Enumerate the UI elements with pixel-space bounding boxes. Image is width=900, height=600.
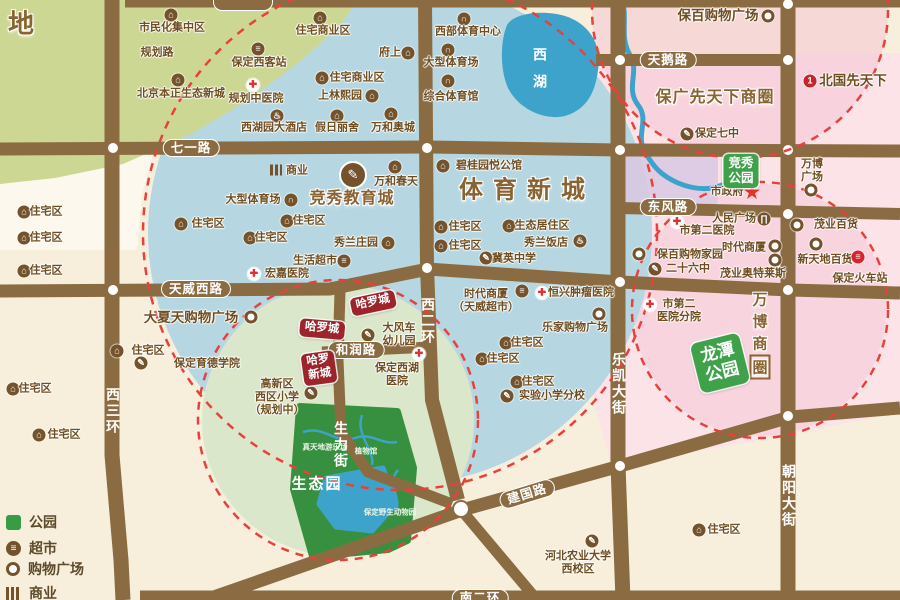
poi-label: 住宅区 [48, 428, 81, 441]
district-label: 地 [8, 4, 36, 41]
poi-label: 住宅区 [708, 523, 741, 536]
poi-label: 大风车幼儿园 [383, 322, 416, 348]
home-icon: ⌂ [314, 12, 327, 25]
poi-label: 住宅区 [19, 382, 52, 395]
label-text: 住宅区 [293, 214, 326, 227]
poi-label: 规划中医院 [229, 92, 284, 105]
label-text: 万和奥城 [371, 121, 415, 134]
road-label: 西二环 [418, 297, 438, 345]
poi-label: 二十六中 [666, 262, 710, 275]
poi-label: 生态居住区 [515, 219, 570, 232]
poi-label: 时代商厦（天威超市） [453, 288, 519, 314]
poi-label: 住宅区 [192, 217, 225, 230]
home-icon: ⌂ [693, 524, 706, 537]
label-text: 大型体育场 [424, 56, 479, 69]
poi-label: 秀兰庄园 [334, 236, 378, 249]
label-text: 住宅区 [255, 231, 288, 244]
home-icon: ⌂ [165, 9, 178, 22]
poi-label: 府上 [379, 46, 401, 59]
label-text: 实验小学分校 [519, 389, 585, 402]
label-text: 广场 [801, 171, 823, 184]
hosp-icon: ✚ [536, 287, 549, 300]
district-label: 生态园 [291, 473, 342, 494]
district-label: 西湖 [533, 38, 547, 99]
home-icon: ⌂ [316, 72, 329, 85]
poi-label: 北国先天下 [819, 73, 887, 89]
poi-label: 保百购物广场 [678, 8, 759, 24]
poi-label: 茂业百货 [814, 218, 858, 231]
road-label-cut [213, 0, 273, 11]
poi-label: 住宅区 [30, 231, 63, 244]
label-text: 西湖园大酒店 [241, 121, 307, 134]
legend-item: 公园 [6, 512, 57, 532]
poi-label: 假日丽舍 [315, 121, 359, 134]
label-text: 商 [749, 333, 770, 354]
label-text: 乐家购物广场 [542, 321, 608, 334]
label-text: 住宅区 [522, 375, 555, 388]
label-text: 竞秀 [728, 156, 753, 171]
label-text: 北国先天下 [819, 73, 887, 89]
home-icon: ⌂ [437, 160, 450, 173]
home-icon: ⌂ [435, 221, 448, 234]
map-labels-layer: ✎ ⌂住宅区⌂住宅区⌂住宅区⌂住宅区⌂住宅区⌂住宅区⌂市民化集中区规划路⌂北京本… [0, 0, 900, 600]
legend-item: 购物广场 [6, 559, 84, 579]
stadium-icon: ∩ [442, 44, 455, 57]
road-label: 西三环 [103, 387, 123, 435]
poi-label: 住宅区 [449, 239, 482, 252]
shop-icon [805, 184, 818, 197]
poi-label: 实验小学分校 [519, 389, 585, 402]
district-label: 竞秀教育城 [309, 184, 394, 208]
label-text: 新天地百货 [798, 253, 853, 266]
label-text: 保定育德学院 [174, 357, 240, 370]
label-text: 西区小学 [250, 391, 305, 404]
poi-label: 大型体育场 [226, 193, 281, 206]
gov-icon: ∏ [758, 213, 771, 226]
poi-label: 恒兴肿瘤医院 [548, 286, 614, 299]
label-text: 生态居住区 [515, 219, 570, 232]
poi-label: 住宅商业区 [330, 71, 385, 84]
poi-label: 北京本正生态新城 [137, 87, 225, 100]
poi-label: 规划路 [141, 46, 174, 59]
home-icon: ⌂ [402, 47, 415, 60]
school-icon: ✎ [681, 128, 694, 141]
label-text: 规划路 [141, 46, 174, 59]
poi-label: 上林熙园 [318, 89, 362, 102]
label-text: 保定火车站 [833, 272, 888, 285]
shop-icon [633, 248, 646, 261]
label-text: 大风车 [383, 322, 416, 335]
legend-shop-icon [6, 562, 20, 576]
poi-label: 住宅区 [487, 352, 520, 365]
label-text: 北京本正生态新城 [137, 87, 225, 100]
poi-label: 宏嘉医院 [265, 267, 309, 280]
home-icon: ⌂ [366, 90, 379, 103]
label-text: 幼儿园 [383, 335, 416, 348]
poi-label: 保定七中 [695, 127, 739, 140]
stadium-icon: ∩ [458, 13, 471, 26]
road-label: 建国路 [497, 477, 556, 511]
poi-label: 乐家购物广场 [542, 321, 608, 334]
school-icon: ✎ [135, 357, 148, 370]
label-text: 住宅区 [30, 264, 63, 277]
label-text: 规划中医院 [229, 92, 284, 105]
district-label: 保广先天下商圈 [655, 83, 774, 107]
poi-label: 商业 [286, 164, 308, 177]
park-label: 植物馆 [355, 446, 378, 457]
label-text: 住宅商业区 [330, 71, 385, 84]
poi-label: 新天地百货 [798, 253, 853, 266]
label-text: 市第二医院 [680, 224, 735, 237]
label-text: 保定七中 [695, 127, 739, 140]
label-text: 万 [749, 289, 770, 310]
train-icon: ≡ [852, 251, 865, 264]
poi-label: 生活超市 [293, 254, 337, 267]
label-text: 上林熙园 [318, 89, 362, 102]
school-icon: ✎ [649, 263, 662, 276]
poi-label: 万和奥城 [371, 121, 415, 134]
shop-icon [769, 254, 782, 267]
label-text: 湖 [533, 72, 547, 92]
district-badge: 哈罗新城 [300, 350, 337, 386]
poi-label: 市第二医院 [680, 224, 735, 237]
label-text: 西 [533, 45, 547, 65]
poi-label: 大夏天购物广场 [144, 310, 239, 326]
poi-label: 住宅区 [30, 264, 63, 277]
poi-label: 保定火车站 [833, 272, 888, 285]
poi-label: 住宅区 [255, 231, 288, 244]
label-text: 万博 [801, 158, 823, 171]
shop-icon [791, 219, 804, 232]
poi-label: 保定育德学院 [174, 357, 240, 370]
shop-icon [810, 238, 823, 251]
one-icon: 1 [804, 75, 817, 88]
legend-item: ≡超市 [6, 538, 57, 558]
biz-icon [270, 165, 282, 176]
label-text: 时代商厦 [453, 288, 519, 301]
label-text: 住宅区 [449, 239, 482, 252]
legend-park-icon [6, 515, 21, 530]
shop-icon [769, 240, 782, 253]
home-icon: ⌂ [111, 345, 124, 358]
road-label: 南二环 [452, 589, 509, 600]
label-text: 住宅区 [708, 523, 741, 536]
label-text: 市第二 [657, 298, 701, 311]
school-icon: ✎ [586, 535, 599, 548]
label-text: 市民化集中区 [139, 21, 205, 34]
district-badge: 龙潭公园 [690, 332, 751, 393]
home-icon: ⌂ [172, 74, 185, 87]
poi-label: 住宅区 [293, 214, 326, 227]
poi-label: 保定西客站 [232, 56, 287, 69]
home-icon: ⌂ [33, 429, 46, 442]
road-label: 天鹅路 [640, 51, 697, 69]
shop-icon [762, 10, 775, 23]
legend-label: 超市 [29, 538, 57, 558]
district-badge: 哈罗城 [349, 290, 396, 317]
label-text: 恒兴肿瘤医院 [548, 286, 614, 299]
poi-label: 保百购物家园 [657, 248, 723, 261]
label-text: 哈罗城 [355, 293, 392, 314]
district-badge: 哈罗城 [299, 318, 345, 340]
road-label: 和润路 [328, 341, 385, 359]
label-text: （天威超市） [453, 301, 519, 314]
district-badge: 竞秀公园 [723, 154, 758, 188]
label-text: 住宅商业区 [296, 24, 351, 37]
poi-label: 西部体育中心 [435, 25, 501, 38]
label-text: 住宅区 [449, 220, 482, 233]
poi-label: 住宅区 [522, 375, 555, 388]
label-text: 西部体育中心 [435, 25, 501, 38]
poi-label: 住宅区 [132, 344, 165, 357]
label-text: 生活超市 [293, 254, 337, 267]
school-icon: ✎ [305, 387, 318, 400]
label-text: 茂业百货 [814, 218, 858, 231]
label-text: 保百购物广场 [678, 8, 759, 24]
label-text: 大型体育场 [226, 193, 281, 206]
school-icon: ✎ [480, 252, 493, 265]
home-icon: ⌂ [389, 161, 402, 174]
label-text: 圈 [749, 355, 770, 380]
label-text: 住宅区 [19, 382, 52, 395]
label-text: 秀兰庄园 [334, 236, 378, 249]
station-icon: ≡ [252, 43, 265, 56]
poi-label: 市第二医院分院 [657, 298, 701, 324]
label-text: 保定西湖 [375, 362, 419, 375]
home-icon: ⌂ [435, 240, 448, 253]
poi-label: 河北农业大学西校区 [545, 550, 611, 576]
label-text: 住宅区 [30, 205, 63, 218]
label-text: 保定西客站 [232, 56, 287, 69]
poi-label: 冀英中学 [492, 252, 536, 265]
poi-label: 住宅商业区 [296, 24, 351, 37]
poi-label: 住宅区 [449, 220, 482, 233]
park-label: 真天地游乐场 [303, 442, 348, 453]
poi-label: 时代商厦 [722, 241, 766, 254]
road-label: 乐凯大街 [609, 352, 629, 416]
legend-super-icon: ≡ [6, 541, 21, 556]
school-icon: ✎ [501, 390, 514, 403]
label-text: 府上 [379, 46, 401, 59]
hotel-icon: ♨ [574, 235, 587, 248]
legend-label: 公园 [29, 512, 57, 532]
label-text: 医院分院 [657, 311, 701, 324]
label-text: 住宅区 [487, 352, 520, 365]
label-text: （规划中） [250, 405, 305, 418]
stadium-icon: ∩ [285, 194, 298, 207]
label-text: 住宅区 [192, 217, 225, 230]
school-icon: ✎ [362, 329, 375, 342]
poi-label: 高新区西区小学（规划中） [250, 378, 305, 418]
poi-label: 市民化集中区 [139, 21, 205, 34]
stadium-icon: ∩ [442, 75, 455, 88]
hosp-icon: ✚ [644, 299, 657, 312]
poi-label: 综合体育馆 [424, 90, 479, 103]
label-text: 大夏天购物广场 [144, 310, 239, 326]
label-text: 住宅区 [511, 336, 544, 349]
poi-label: 西湖园大酒店 [241, 121, 307, 134]
label-text: 茂业奥特莱斯 [720, 267, 786, 280]
label-text: 哈罗城 [304, 321, 340, 338]
label-text: 保百购物家园 [657, 248, 723, 261]
label-text: 博 [749, 311, 770, 332]
label-text: 住宅区 [48, 428, 81, 441]
label-text: 冀英中学 [492, 252, 536, 265]
road-label: 天威西路 [161, 280, 231, 298]
label-text: 新城 [308, 366, 333, 383]
label-text: 综合体育馆 [424, 90, 479, 103]
home-icon: ⌂ [385, 108, 398, 121]
poi-label: 万博广场 [801, 158, 823, 184]
label-text: 时代商厦 [722, 241, 766, 254]
legend-item: 商业 [6, 583, 57, 600]
shop-icon [245, 311, 258, 324]
label-text: 秀兰饭店 [524, 236, 568, 249]
label-text: 西校区 [545, 563, 611, 576]
poi-label: 住宅区 [30, 205, 63, 218]
park-label: 保定野生动物园 [364, 507, 417, 518]
road-label: 东风路 [640, 198, 697, 216]
home-icon: ⌂ [382, 237, 395, 250]
label-text: 商业 [286, 164, 308, 177]
label-text: 假日丽舍 [315, 121, 359, 134]
hosp-icon: ✚ [413, 348, 426, 361]
label-text: 住宅区 [30, 231, 63, 244]
super-icon: ≡ [338, 255, 351, 268]
poi-label: 秀兰饭店 [524, 236, 568, 249]
poi-label: 茂业奥特莱斯 [720, 267, 786, 280]
legend-label: 购物广场 [28, 559, 84, 579]
district-label: 体育新城 [459, 170, 595, 205]
hosp-icon: ✚ [247, 79, 260, 92]
poi-label: 保定西湖医院 [375, 362, 419, 388]
poi-label: 住宅区 [511, 336, 544, 349]
home-icon: ⌂ [175, 218, 188, 231]
label-text: 宏嘉医院 [265, 267, 309, 280]
label-text: 住宅区 [132, 344, 165, 357]
hosp-icon: ✚ [248, 268, 261, 281]
road-label: 七一路 [163, 139, 220, 157]
legend-biz-icon [6, 587, 21, 600]
poi-label: 大型体育场 [424, 56, 479, 69]
label-text: 二十六中 [666, 262, 710, 275]
label-text: 公园 [728, 171, 753, 186]
district-label: 万博商圈 [749, 288, 770, 381]
label-text: 医院 [375, 375, 419, 388]
map-canvas: ✎ ⌂住宅区⌂住宅区⌂住宅区⌂住宅区⌂住宅区⌂住宅区⌂市民化集中区规划路⌂北京本… [0, 0, 900, 600]
road-label: 朝阳大街 [779, 464, 799, 528]
label-text: 河北农业大学 [545, 550, 611, 563]
shop-icon [593, 308, 606, 321]
legend-label: 商业 [29, 583, 57, 600]
label-text: 高新区 [250, 378, 305, 391]
